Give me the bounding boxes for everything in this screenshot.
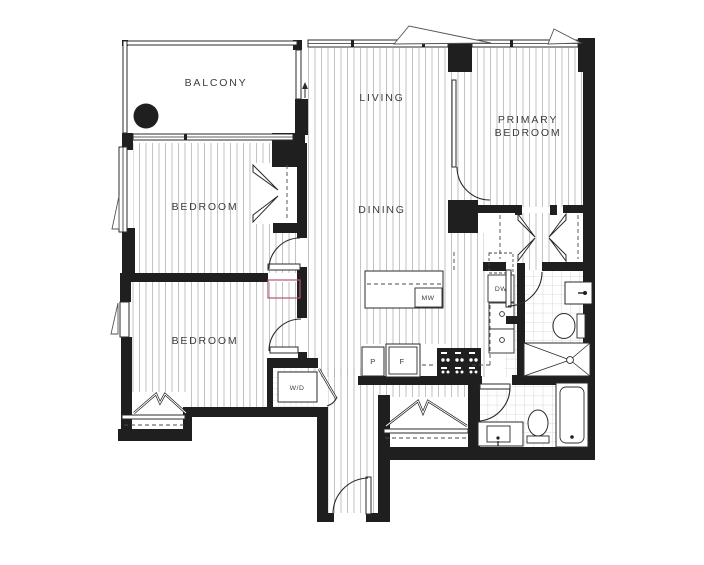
dishwasher-label: DW: [495, 286, 507, 293]
balcony-left-rail: [123, 41, 127, 133]
washer-dryer-label: W/D: [290, 385, 305, 392]
bifold-door-icon: [549, 214, 566, 237]
kitchen-cabinet: [489, 329, 514, 353]
bedroom1-label: BEDROOM: [172, 201, 239, 213]
bath-door-leaf: [480, 384, 510, 389]
microwave-label: MW: [421, 295, 434, 302]
shower-icon: [524, 343, 590, 376]
dining-label: DINING: [358, 204, 406, 216]
pantry-label: P: [370, 357, 376, 366]
entry-arrow-icon: [302, 82, 308, 98]
bathtub-icon: [556, 383, 588, 447]
balcony-label: BALCONY: [185, 77, 248, 89]
toilet-icon: [527, 410, 549, 443]
balcony-table-icon: [134, 104, 159, 129]
balcony-slider: [296, 50, 301, 99]
primary-bedroom-label-line2: BEDROOM: [495, 127, 562, 139]
floor-plan-page: { "plan": { "rooms": { "balcony": "BALCO…: [0, 0, 704, 565]
window-flag-icon: [111, 303, 118, 334]
window-flag-icon: [394, 26, 491, 44]
balcony-top-rail: [123, 41, 297, 45]
window-flag-icon: [548, 29, 581, 44]
vanity-sink-icon: [487, 426, 510, 442]
window-flag-icon: [112, 196, 119, 229]
living-label: LIVING: [359, 92, 404, 104]
bifold-door-icon: [549, 238, 566, 261]
bedroom2-door-leaf: [270, 347, 298, 353]
bedroom2-label: BEDROOM: [172, 335, 239, 347]
kitchen-sink-icon: [506, 316, 517, 324]
fridge-label: F: [399, 357, 404, 366]
primary-bedroom-label-line1: PRIMARY: [498, 114, 558, 126]
floor-plan-drawing: BALCONY LIVING DINING PRIMARY BEDROOM BE…: [0, 0, 704, 565]
entry-door-leaf: [366, 477, 371, 514]
primary-entry-partition: [452, 80, 456, 167]
stove-icon: [437, 348, 481, 377]
toilet-icon: [553, 314, 585, 339]
bedroom2-window: [120, 302, 129, 337]
bedroom1-door-leaf: [268, 264, 300, 270]
